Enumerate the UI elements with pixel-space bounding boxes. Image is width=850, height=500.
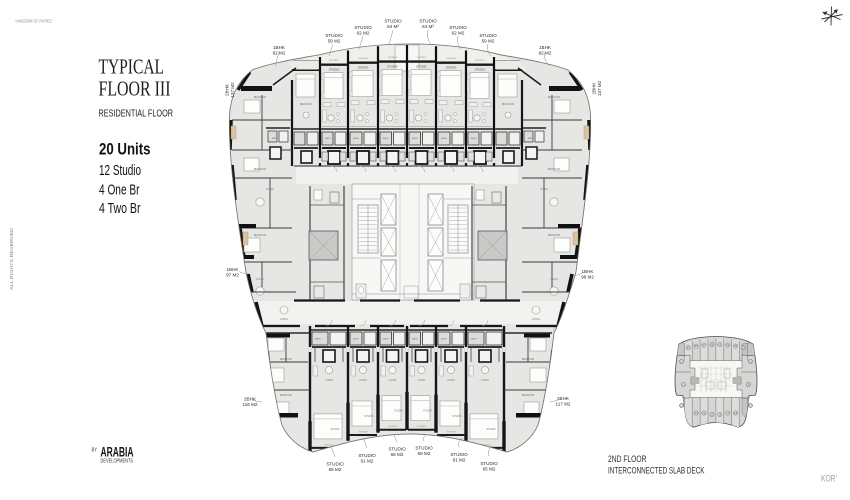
svg-text:1BHK97 M2: 1BHK97 M2: [226, 267, 239, 277]
svg-text:LIVING: LIVING: [256, 278, 264, 281]
svg-text:STUDIO61 M2: STUDIO61 M2: [450, 452, 468, 462]
svg-text:LIVING: LIVING: [447, 379, 455, 382]
svg-text:STUDIO59 M2: STUDIO59 M2: [325, 33, 343, 43]
svg-text:TERRACE: TERRACE: [446, 57, 457, 60]
svg-text:KOR’: KOR’: [821, 474, 837, 484]
svg-text:STUDIO62 M2: STUDIO62 M2: [354, 25, 372, 35]
svg-text:LIVING: LIVING: [481, 379, 489, 382]
svg-text:BEDROOM: BEDROOM: [254, 168, 266, 171]
svg-text:TERRACE: TERRACE: [358, 431, 369, 434]
svg-text:STUDIO: STUDIO: [446, 66, 457, 70]
svg-text:ALL RIGHTS RESERVED: ALL RIGHTS RESERVED: [9, 227, 15, 290]
svg-text:STUDIO: STUDIO: [358, 66, 369, 70]
svg-text:BATH: BATH: [471, 137, 477, 140]
svg-text:STUDIO65 M2: STUDIO65 M2: [480, 461, 498, 471]
svg-text:LIVING: LIVING: [389, 379, 397, 382]
svg-text:STUDIO: STUDIO: [452, 415, 461, 418]
svg-text:BATH: BATH: [353, 137, 359, 140]
svg-text:TYPICAL: TYPICAL: [99, 54, 165, 78]
svg-text:TERRACE: TERRACE: [417, 425, 428, 428]
svg-text:LIVING: LIVING: [418, 379, 426, 382]
svg-text:BATH: BATH: [412, 338, 418, 341]
svg-text:BEDROOM: BEDROOM: [300, 103, 312, 106]
svg-text:LIVING: LIVING: [532, 318, 540, 321]
svg-text:TERRACE: TERRACE: [417, 56, 428, 59]
svg-text:STUDIO: STUDIO: [329, 68, 340, 72]
svg-text:LIVING: LIVING: [280, 318, 288, 321]
svg-text:BATH: BATH: [412, 137, 418, 140]
svg-text:STUDIO: STUDIO: [387, 65, 398, 69]
svg-text:LIVING: LIVING: [540, 188, 548, 191]
svg-text:20 Units: 20 Units: [99, 140, 151, 159]
svg-text:STUDIO62 M2: STUDIO62 M2: [449, 25, 467, 35]
svg-text:2BHK137 M2: 2BHK137 M2: [225, 82, 235, 98]
svg-text:BATH: BATH: [383, 338, 389, 341]
svg-text:1BHK82 M2: 1BHK82 M2: [539, 45, 552, 55]
svg-text:BEDROOM: BEDROOM: [254, 96, 266, 99]
svg-text:TERRACE: TERRACE: [388, 56, 399, 59]
svg-text:LIVING: LIVING: [550, 278, 558, 281]
svg-text:BEDROOM: BEDROOM: [502, 103, 514, 106]
svg-text:STUDIO59 M2: STUDIO59 M2: [479, 33, 497, 43]
svg-text:2BHK117 M2: 2BHK117 M2: [556, 396, 571, 406]
svg-text:STUDIO65 M2: STUDIO65 M2: [326, 462, 344, 472]
svg-text:2BHK137 M2: 2BHK137 M2: [592, 80, 602, 96]
svg-text:4 Two Br: 4 Two Br: [99, 200, 141, 217]
svg-text:STUDIO: STUDIO: [416, 65, 427, 69]
svg-text:12 Studio: 12 Studio: [99, 162, 141, 179]
svg-text:LIVING: LIVING: [266, 188, 274, 191]
svg-text:TERRACE: TERRACE: [475, 59, 486, 62]
svg-text:BATH: BATH: [315, 338, 321, 341]
svg-text:BATH: BATH: [471, 338, 477, 341]
svg-text:LIVING: LIVING: [325, 379, 333, 382]
svg-text:BATH: BATH: [383, 137, 389, 140]
svg-text:BATH: BATH: [272, 137, 278, 140]
svg-text:STUDIO58 M2: STUDIO58 M2: [388, 447, 406, 457]
svg-text:BATH: BATH: [325, 137, 331, 140]
svg-text:BEDROOM: BEDROOM: [254, 234, 266, 237]
svg-text:KINGDOM OF RARES’: KINGDOM OF RARES’: [16, 18, 53, 24]
svg-text:STUDIO: STUDIO: [423, 410, 432, 413]
svg-text:STUDIO64 M²: STUDIO64 M²: [419, 19, 437, 29]
svg-text:1BHK98 M2: 1BHK98 M2: [581, 269, 594, 279]
svg-text:TERRACE: TERRACE: [358, 57, 369, 60]
svg-text:BY: BY: [92, 448, 98, 454]
svg-text:BEDROOM: BEDROOM: [548, 96, 560, 99]
svg-text:STUDIO64 M²: STUDIO64 M²: [384, 19, 402, 29]
svg-text:STUDIO58 M2: STUDIO58 M2: [415, 446, 433, 456]
svg-text:RESIDENTIAL FLOOR: RESIDENTIAL FLOOR: [99, 108, 174, 120]
svg-text:BEDROOM: BEDROOM: [522, 394, 534, 397]
svg-text:1BHK82 M2: 1BHK82 M2: [273, 45, 286, 55]
svg-text:STUDIO: STUDIO: [486, 428, 495, 431]
svg-text:FLOOR III: FLOOR III: [99, 77, 171, 101]
svg-text:DEVELOPMENTS: DEVELOPMENTS: [101, 459, 134, 465]
svg-text:STUDIO: STUDIO: [475, 68, 486, 72]
svg-text:BEDROOM: BEDROOM: [548, 234, 560, 237]
svg-text:STUDIO: STUDIO: [330, 428, 339, 431]
svg-text:BATH: BATH: [441, 137, 447, 140]
svg-text:2ND FLOOR: 2ND FLOOR: [608, 454, 647, 464]
svg-text:4 One Br: 4 One Br: [99, 181, 140, 198]
svg-text:TERRACE: TERRACE: [388, 425, 399, 428]
svg-text:STUDIO: STUDIO: [394, 410, 403, 413]
svg-text:BATH: BATH: [353, 338, 359, 341]
svg-text:LIVING: LIVING: [359, 379, 367, 382]
svg-text:TERRACE: TERRACE: [446, 431, 457, 434]
svg-text:BEDROOM: BEDROOM: [548, 168, 560, 171]
svg-text:STUDIO: STUDIO: [364, 415, 373, 418]
svg-text:INTERCONNECTED SLAB DECK: INTERCONNECTED SLAB DECK: [608, 465, 705, 475]
svg-text:2BHK116 M2: 2BHK116 M2: [243, 397, 258, 407]
svg-text:BATH: BATH: [441, 338, 447, 341]
svg-text:STUDIO61 M2: STUDIO61 M2: [358, 453, 376, 463]
svg-text:BEDROOM: BEDROOM: [280, 394, 292, 397]
svg-text:BATH: BATH: [528, 137, 534, 140]
svg-text:TERRACE: TERRACE: [329, 59, 340, 62]
